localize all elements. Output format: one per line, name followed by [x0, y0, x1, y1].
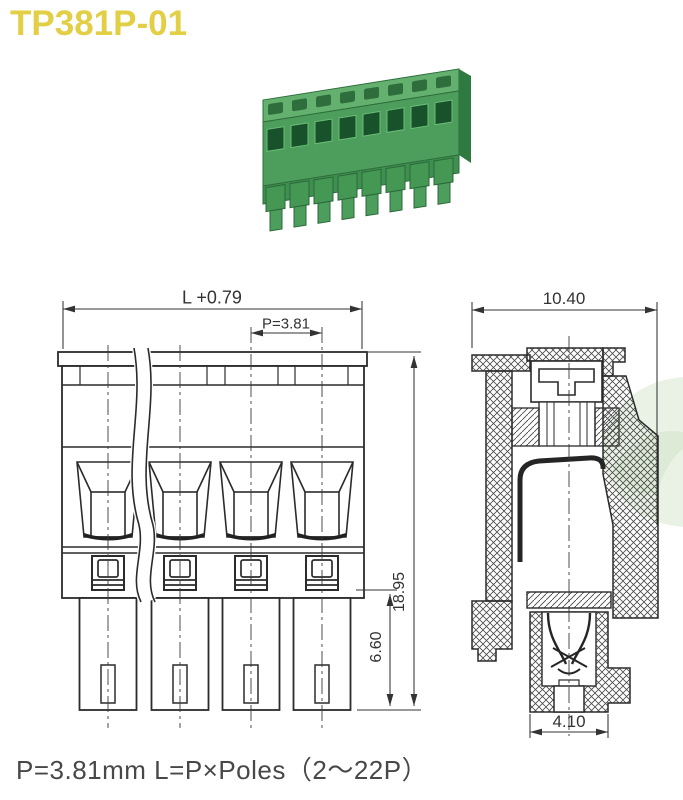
dim-front-pitch: P=3.81 — [262, 316, 310, 333]
footer-note: P=3.81mm L=P×Poles（2～22P） — [16, 750, 428, 787]
dim-side-width: 10.40 — [543, 289, 586, 309]
technical-drawing — [0, 0, 683, 800]
dim-front-total-width: L +0.79 — [182, 288, 242, 309]
datasheet-page: TP381P-01 — [0, 0, 683, 800]
dim-front-leg-height: 6.60 — [368, 631, 386, 662]
side-view-drawing — [472, 336, 658, 736]
dim-front-total-height: 18.95 — [391, 572, 409, 612]
front-view-drawing — [58, 327, 367, 728]
dim-side-pin-width: 4.10 — [552, 712, 585, 732]
